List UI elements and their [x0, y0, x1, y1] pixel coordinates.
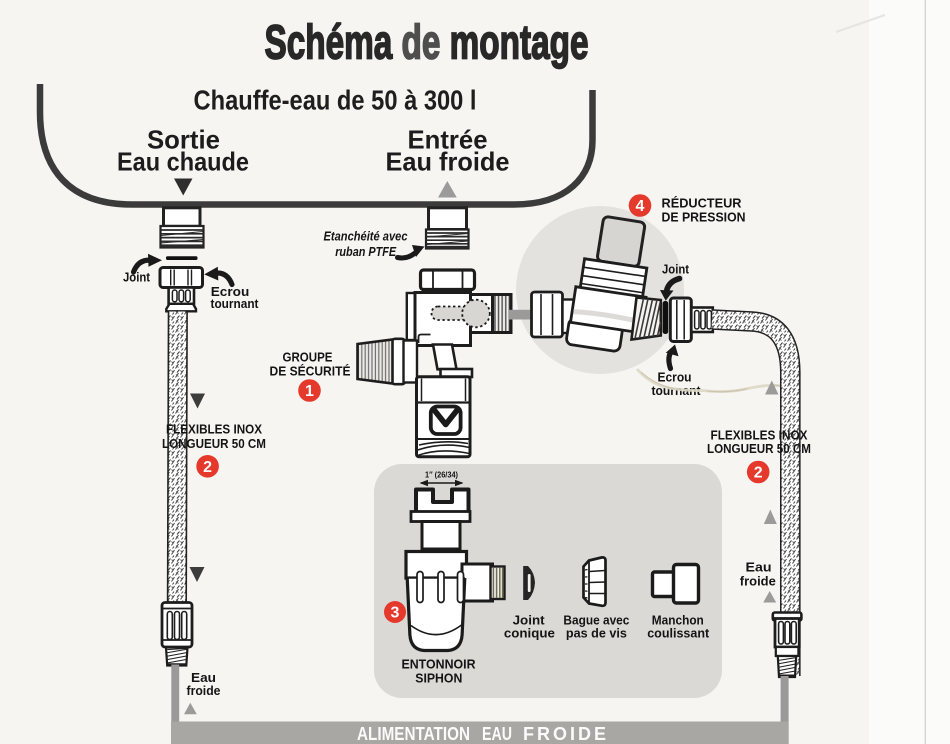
- svg-text:ruban PTFE: ruban PTFE: [335, 245, 397, 259]
- svg-text:ENTONNOIR: ENTONNOIR: [402, 657, 477, 672]
- svg-text:Schéma de montage: Schéma de montage: [265, 16, 589, 70]
- svg-text:DE PRESSION: DE PRESSION: [662, 211, 746, 225]
- svg-text:Ecrou: Ecrou: [658, 371, 692, 385]
- svg-text:RÉDUCTEUR: RÉDUCTEUR: [662, 196, 742, 211]
- svg-text:Joint: Joint: [662, 263, 690, 277]
- svg-text:Etanchéité avec: Etanchéité avec: [324, 230, 408, 244]
- svg-text:Eau chaude: Eau chaude: [117, 147, 249, 177]
- svg-text:froide: froide: [187, 683, 221, 698]
- svg-text:coulissant: coulissant: [647, 626, 710, 641]
- svg-text:tournant: tournant: [211, 297, 260, 311]
- svg-text:LONGUEUR 50 CM: LONGUEUR 50 CM: [162, 437, 266, 451]
- svg-text:LONGUEUR 50 CM: LONGUEUR 50 CM: [707, 442, 811, 456]
- svg-text:GROUPE: GROUPE: [283, 350, 333, 365]
- svg-text:FLEXIBLES INOX: FLEXIBLES INOX: [166, 423, 263, 437]
- svg-text:ALIMENTATION: ALIMENTATION: [357, 724, 470, 744]
- svg-text:1″ (26/34): 1″ (26/34): [425, 470, 458, 480]
- svg-text:Eau: Eau: [746, 560, 772, 575]
- svg-text:conique: conique: [504, 626, 555, 641]
- svg-text:4: 4: [636, 198, 645, 215]
- svg-text:EAU: EAU: [482, 724, 512, 744]
- svg-text:2: 2: [203, 459, 212, 476]
- svg-text:pas de vis: pas de vis: [566, 626, 627, 641]
- svg-text:DE SÉCURITÉ: DE SÉCURITÉ: [270, 364, 351, 379]
- svg-text:Chauffe-eau de 50 à 300 l: Chauffe-eau de 50 à 300 l: [194, 85, 477, 116]
- svg-text:Joint: Joint: [123, 271, 151, 285]
- svg-text:1: 1: [305, 383, 314, 400]
- svg-text:SIPHON: SIPHON: [415, 671, 462, 686]
- svg-text:FLEXIBLES INOX: FLEXIBLES INOX: [711, 429, 809, 443]
- svg-text:3: 3: [391, 605, 400, 622]
- svg-text:froide: froide: [740, 574, 776, 589]
- svg-text:2: 2: [754, 465, 763, 482]
- svg-text:Eau froide: Eau froide: [386, 147, 510, 177]
